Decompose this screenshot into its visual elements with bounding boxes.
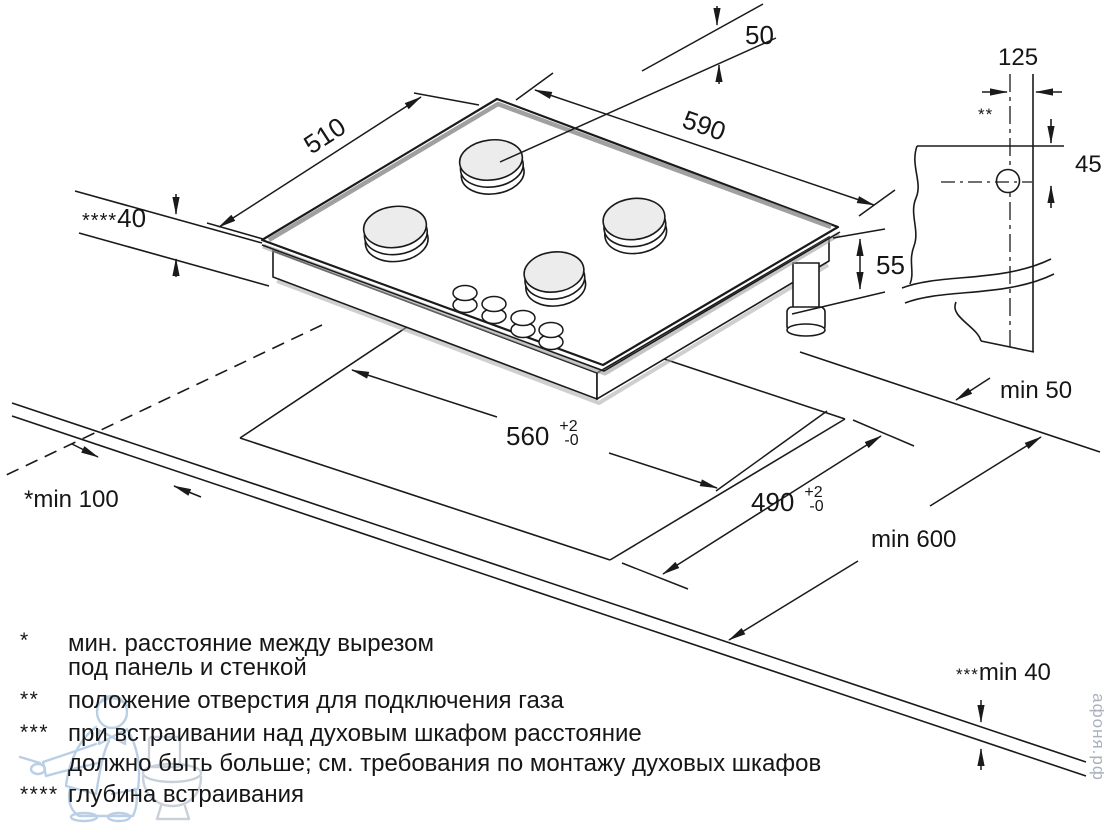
label-worktop-depth-min600: min 600 [871, 527, 956, 552]
detail-bottom-edge [981, 341, 1034, 352]
label-embed-depth-40: ****40 [82, 205, 146, 232]
detail-break-arc-bottom [905, 274, 1054, 303]
dim-min50 [956, 378, 990, 400]
legend-text-2: положение отверстия для подключения газа [68, 688, 564, 713]
knob [453, 286, 477, 313]
oven-gap-value: min 40 [979, 659, 1051, 686]
label-side-clearance-min100: *min 100 [24, 487, 119, 512]
cutout-depth-value: 490 [751, 489, 794, 516]
installation-diagram: афоня.рф 510 590 50 ****40 55 125 ** 45 … [0, 0, 1104, 828]
mascot-tool [20, 757, 40, 763]
label-body-height-55: 55 [876, 252, 905, 279]
cutout-width-value: 560 [506, 423, 549, 450]
worktop-rear-edge-bottom [79, 233, 269, 286]
label-cutout-width-560: 560 +2 -0 [506, 423, 579, 451]
legend-text-1a: мин. расстояние между вырезом [68, 631, 434, 656]
cutout-width-tolerance: +2 -0 [559, 420, 578, 448]
knob [511, 311, 535, 338]
gas-hole [997, 170, 1020, 193]
legend-marker-2: ** [20, 689, 39, 711]
mascot-hand [31, 764, 45, 774]
label-rear-clearance-min50: min 50 [1000, 378, 1072, 403]
legend-text-3b: должно быть больше; см. требования по мо… [68, 751, 821, 776]
knob [482, 297, 506, 324]
embed-depth-marker: **** [82, 210, 117, 232]
knob [539, 323, 563, 350]
legend-marker-1: * [20, 630, 30, 652]
hob [262, 99, 840, 403]
cutout-edge-back-left [240, 315, 425, 438]
label-gas-offset-125: 125 [998, 45, 1038, 70]
embed-depth-value: 40 [117, 203, 146, 233]
label-cutout-depth-490: 490 +2 -0 [751, 489, 824, 517]
watermark-site-text: афоня.рф [1089, 693, 1104, 781]
gas-pipe [787, 263, 825, 336]
label-oven-gap-min40: ***min 40 [956, 660, 1051, 685]
detail-left-wavy-edge [910, 146, 918, 284]
legend-marker-4: **** [20, 784, 59, 806]
cutout-depth-tolerance: +2 -0 [804, 486, 823, 514]
label-gas-hole-marker: ** [978, 106, 993, 124]
legend-text-1b: под панель и стенкой [68, 655, 307, 680]
legend-marker-3: *** [20, 722, 49, 744]
label-burner-offset-50: 50 [745, 22, 774, 49]
legend-text-3a: при встраивании над духовым шкафом расст… [68, 721, 642, 746]
detail-lower-left-edge [955, 302, 981, 341]
label-gas-offset-45: 45 [1075, 152, 1102, 177]
hidden-side-line [2, 325, 322, 477]
legend-text-4: глубина встраивания [68, 782, 304, 807]
oven-gap-marker: *** [956, 665, 979, 684]
